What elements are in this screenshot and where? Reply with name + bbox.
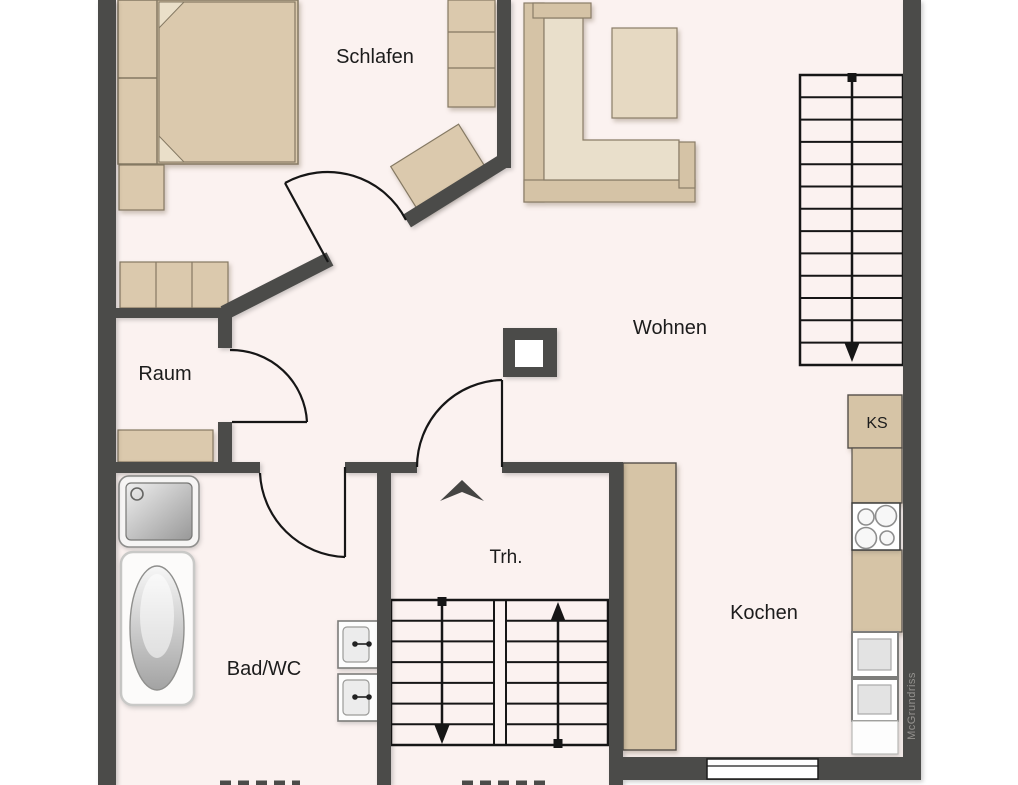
sofa-armrest-right bbox=[679, 142, 695, 188]
room-label-bad-wc: Bad/WC bbox=[227, 658, 301, 680]
floorplan-canvas: Schlafen Wohnen Raum Bad/WC Trh. Kochen … bbox=[0, 0, 1018, 785]
kitchen-sink-unit-1 bbox=[852, 632, 898, 677]
window-frame bbox=[707, 759, 818, 779]
burner-1 bbox=[858, 509, 874, 525]
basin2-faucet-dot-b bbox=[366, 694, 372, 700]
room-label-raum: Raum bbox=[138, 363, 191, 385]
wall-exterior-left bbox=[98, 0, 116, 785]
fridge-label: KS bbox=[866, 415, 887, 432]
basin1-faucet-dot-a bbox=[352, 641, 358, 647]
bed-mattress bbox=[159, 2, 295, 162]
washbasin-2 bbox=[338, 674, 378, 721]
sofa-back-bottom bbox=[524, 180, 695, 202]
wall-raum-right-upper bbox=[218, 308, 232, 348]
room-label-trh: Trh. bbox=[489, 547, 522, 568]
sofa-back-left bbox=[524, 3, 544, 202]
window-kochen bbox=[707, 759, 818, 779]
wall-trh-kochen-divider bbox=[609, 462, 623, 785]
basin2-faucet-dot-a bbox=[352, 694, 358, 700]
room-label-kochen: Kochen bbox=[730, 602, 798, 624]
sink2-basin bbox=[858, 685, 891, 714]
stairs-wohnen-start-marker bbox=[848, 73, 857, 82]
sideboard-raum bbox=[118, 430, 213, 462]
stairs-trh-left-start-marker bbox=[438, 597, 447, 606]
bathtub-highlight bbox=[140, 574, 174, 658]
burner-3 bbox=[856, 528, 877, 549]
floorplan-page: Schlafen Wohnen Raum Bad/WC Trh. Kochen … bbox=[0, 0, 1018, 785]
basin1-faucet-dot-b bbox=[366, 641, 372, 647]
room-label-schlafen: Schlafen bbox=[336, 46, 414, 68]
wardrobe-body bbox=[448, 0, 495, 107]
wall-bad-trh-divider bbox=[377, 462, 391, 785]
kitchen-counter-left bbox=[623, 463, 676, 750]
sideboard-schlafen bbox=[120, 262, 228, 308]
wall-exterior-right bbox=[903, 0, 921, 780]
burner-4 bbox=[880, 531, 894, 545]
sink1-basin bbox=[858, 639, 891, 670]
burner-2 bbox=[876, 506, 897, 527]
wall-schlafen-wohnen bbox=[497, 0, 511, 168]
wardrobe bbox=[448, 0, 495, 107]
sideboard-schlafen-body bbox=[120, 262, 228, 308]
wall-corridor-left bbox=[98, 462, 260, 473]
shower bbox=[119, 476, 199, 547]
support-column-core bbox=[515, 340, 543, 367]
kitchen-sink-unit-2 bbox=[852, 679, 898, 721]
coffee-table bbox=[612, 28, 677, 118]
wall-raum-right-lower bbox=[218, 422, 232, 467]
bathtub bbox=[121, 552, 194, 705]
shower-floor bbox=[126, 483, 192, 540]
kitchen-counter-upper bbox=[852, 448, 902, 503]
kitchen-counter-lower bbox=[852, 550, 902, 632]
wall-corridor-right bbox=[502, 462, 623, 473]
room-label-wohnen: Wohnen bbox=[633, 317, 707, 339]
sofa-armrest-top bbox=[533, 3, 591, 18]
stairs-trh-right-start-marker bbox=[554, 739, 563, 748]
washbasin-1 bbox=[338, 621, 378, 668]
nightstand bbox=[119, 165, 164, 210]
watermark-text: McGrundriss bbox=[906, 672, 918, 740]
bed bbox=[118, 0, 298, 164]
cooktop bbox=[852, 503, 900, 550]
kitchen-base-cabinet bbox=[852, 721, 898, 754]
wall-raum-top bbox=[116, 308, 232, 318]
